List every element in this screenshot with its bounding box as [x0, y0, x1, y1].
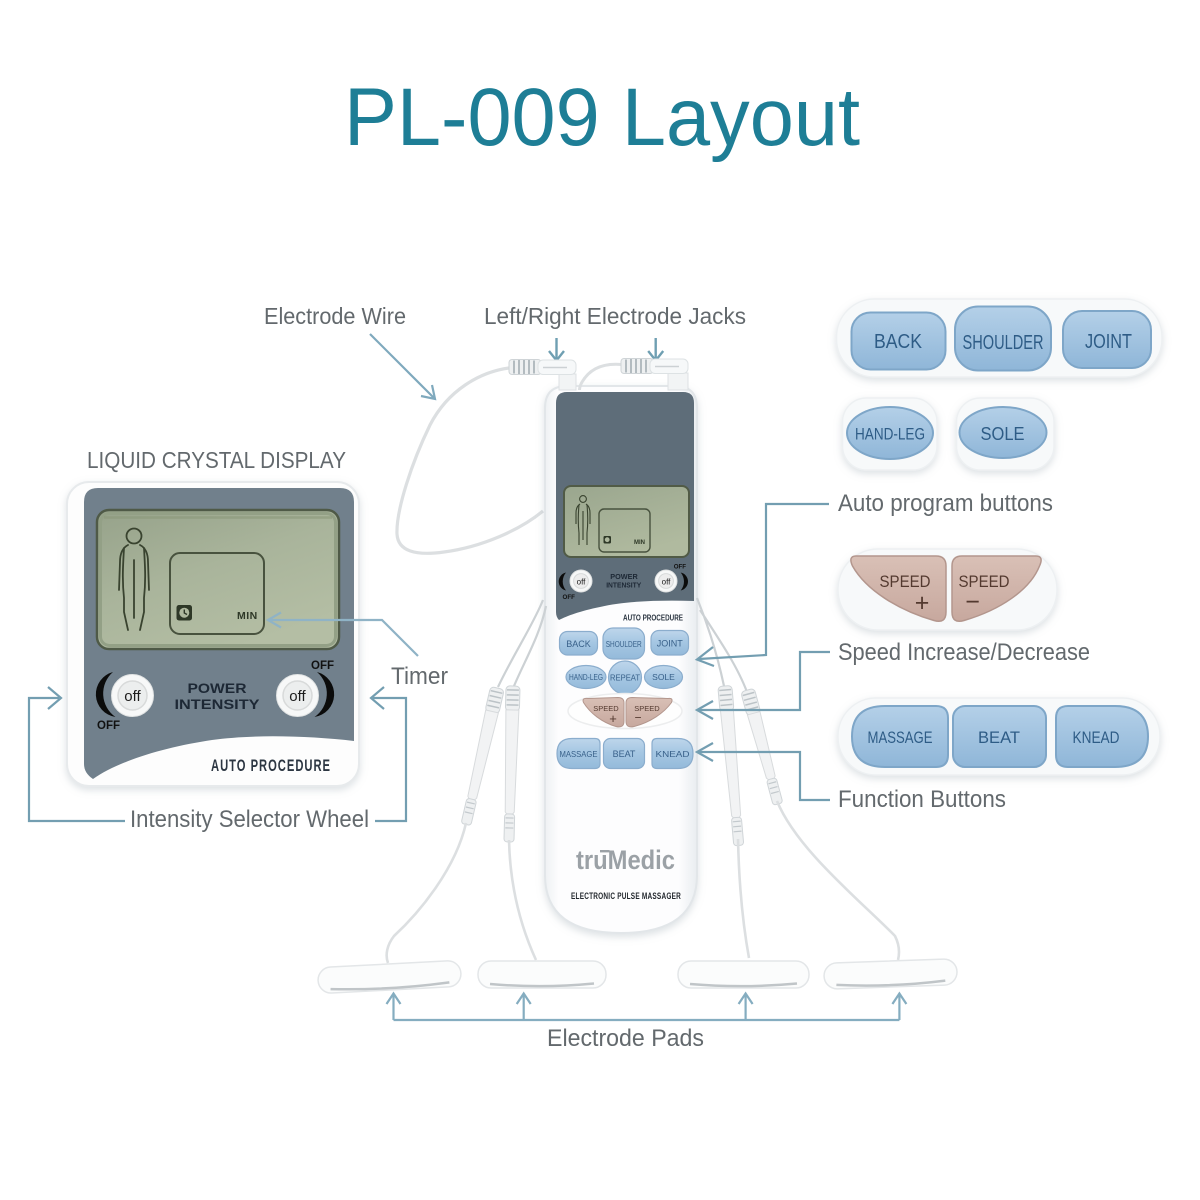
svg-text:BEAT: BEAT: [978, 728, 1020, 747]
svg-text:SOLE: SOLE: [981, 424, 1025, 444]
svg-text:INTENSITY: INTENSITY: [175, 697, 260, 712]
svg-text:SHOULDER: SHOULDER: [963, 332, 1044, 354]
svg-text:JOINT: JOINT: [1085, 331, 1132, 353]
svg-text:MASSAGE: MASSAGE: [560, 749, 598, 759]
svg-text:POWER: POWER: [188, 681, 247, 696]
svg-text:Electrode Wire: Electrode Wire: [264, 303, 406, 329]
svg-text:ELECTRONIC PULSE MASSAGER: ELECTRONIC PULSE MASSAGER: [571, 891, 681, 901]
svg-text:off: off: [124, 688, 141, 705]
svg-text:−: −: [634, 711, 641, 725]
svg-text:truMedic: truMedic: [576, 845, 675, 875]
svg-text:MIN: MIN: [237, 610, 258, 622]
svg-text:Left/Right Electrode Jacks: Left/Right Electrode Jacks: [484, 303, 746, 329]
svg-text:off: off: [662, 578, 672, 587]
svg-text:BEAT: BEAT: [613, 749, 636, 759]
svg-text:off: off: [289, 688, 306, 705]
svg-text:+: +: [915, 589, 930, 617]
svg-text:OFF: OFF: [563, 594, 576, 601]
svg-text:KNEAD: KNEAD: [656, 749, 690, 759]
svg-text:HAND-LEG: HAND-LEG: [569, 673, 603, 682]
svg-text:Intensity Selector Wheel: Intensity Selector Wheel: [130, 806, 369, 833]
svg-text:Timer: Timer: [391, 663, 448, 690]
svg-text:JOINT: JOINT: [657, 639, 684, 649]
svg-text:BACK: BACK: [566, 639, 591, 649]
svg-text:off: off: [577, 578, 587, 587]
svg-text:Function Buttons: Function Buttons: [838, 786, 1006, 813]
svg-text:REPEAT: REPEAT: [610, 673, 640, 683]
svg-text:MIN: MIN: [634, 540, 645, 546]
svg-text:SOLE: SOLE: [652, 672, 675, 682]
svg-text:AUTO PROCEDURE: AUTO PROCEDURE: [211, 756, 331, 775]
svg-text:AUTO PROCEDURE: AUTO PROCEDURE: [623, 614, 683, 623]
svg-text:Speed Increase/Decrease: Speed Increase/Decrease: [838, 639, 1090, 666]
svg-text:HAND-LEG: HAND-LEG: [855, 425, 925, 444]
svg-text:PL-009 Layout: PL-009 Layout: [344, 72, 860, 163]
svg-text:INTENSITY: INTENSITY: [606, 581, 641, 590]
svg-text:OFF: OFF: [97, 720, 120, 732]
svg-text:OFF: OFF: [674, 564, 687, 571]
svg-text:SHOULDER: SHOULDER: [606, 639, 642, 649]
svg-text:+: +: [609, 711, 617, 726]
svg-text:Electrode Pads: Electrode Pads: [547, 1025, 704, 1052]
svg-text:−: −: [965, 588, 980, 616]
svg-text:BACK: BACK: [874, 331, 923, 353]
svg-text:LIQUID CRYSTAL DISPLAY: LIQUID CRYSTAL DISPLAY: [87, 447, 346, 473]
svg-text:MASSAGE: MASSAGE: [868, 728, 933, 747]
svg-text:OFF: OFF: [311, 660, 334, 672]
svg-text:KNEAD: KNEAD: [1073, 728, 1120, 747]
svg-text:Auto program buttons: Auto program buttons: [838, 490, 1053, 517]
